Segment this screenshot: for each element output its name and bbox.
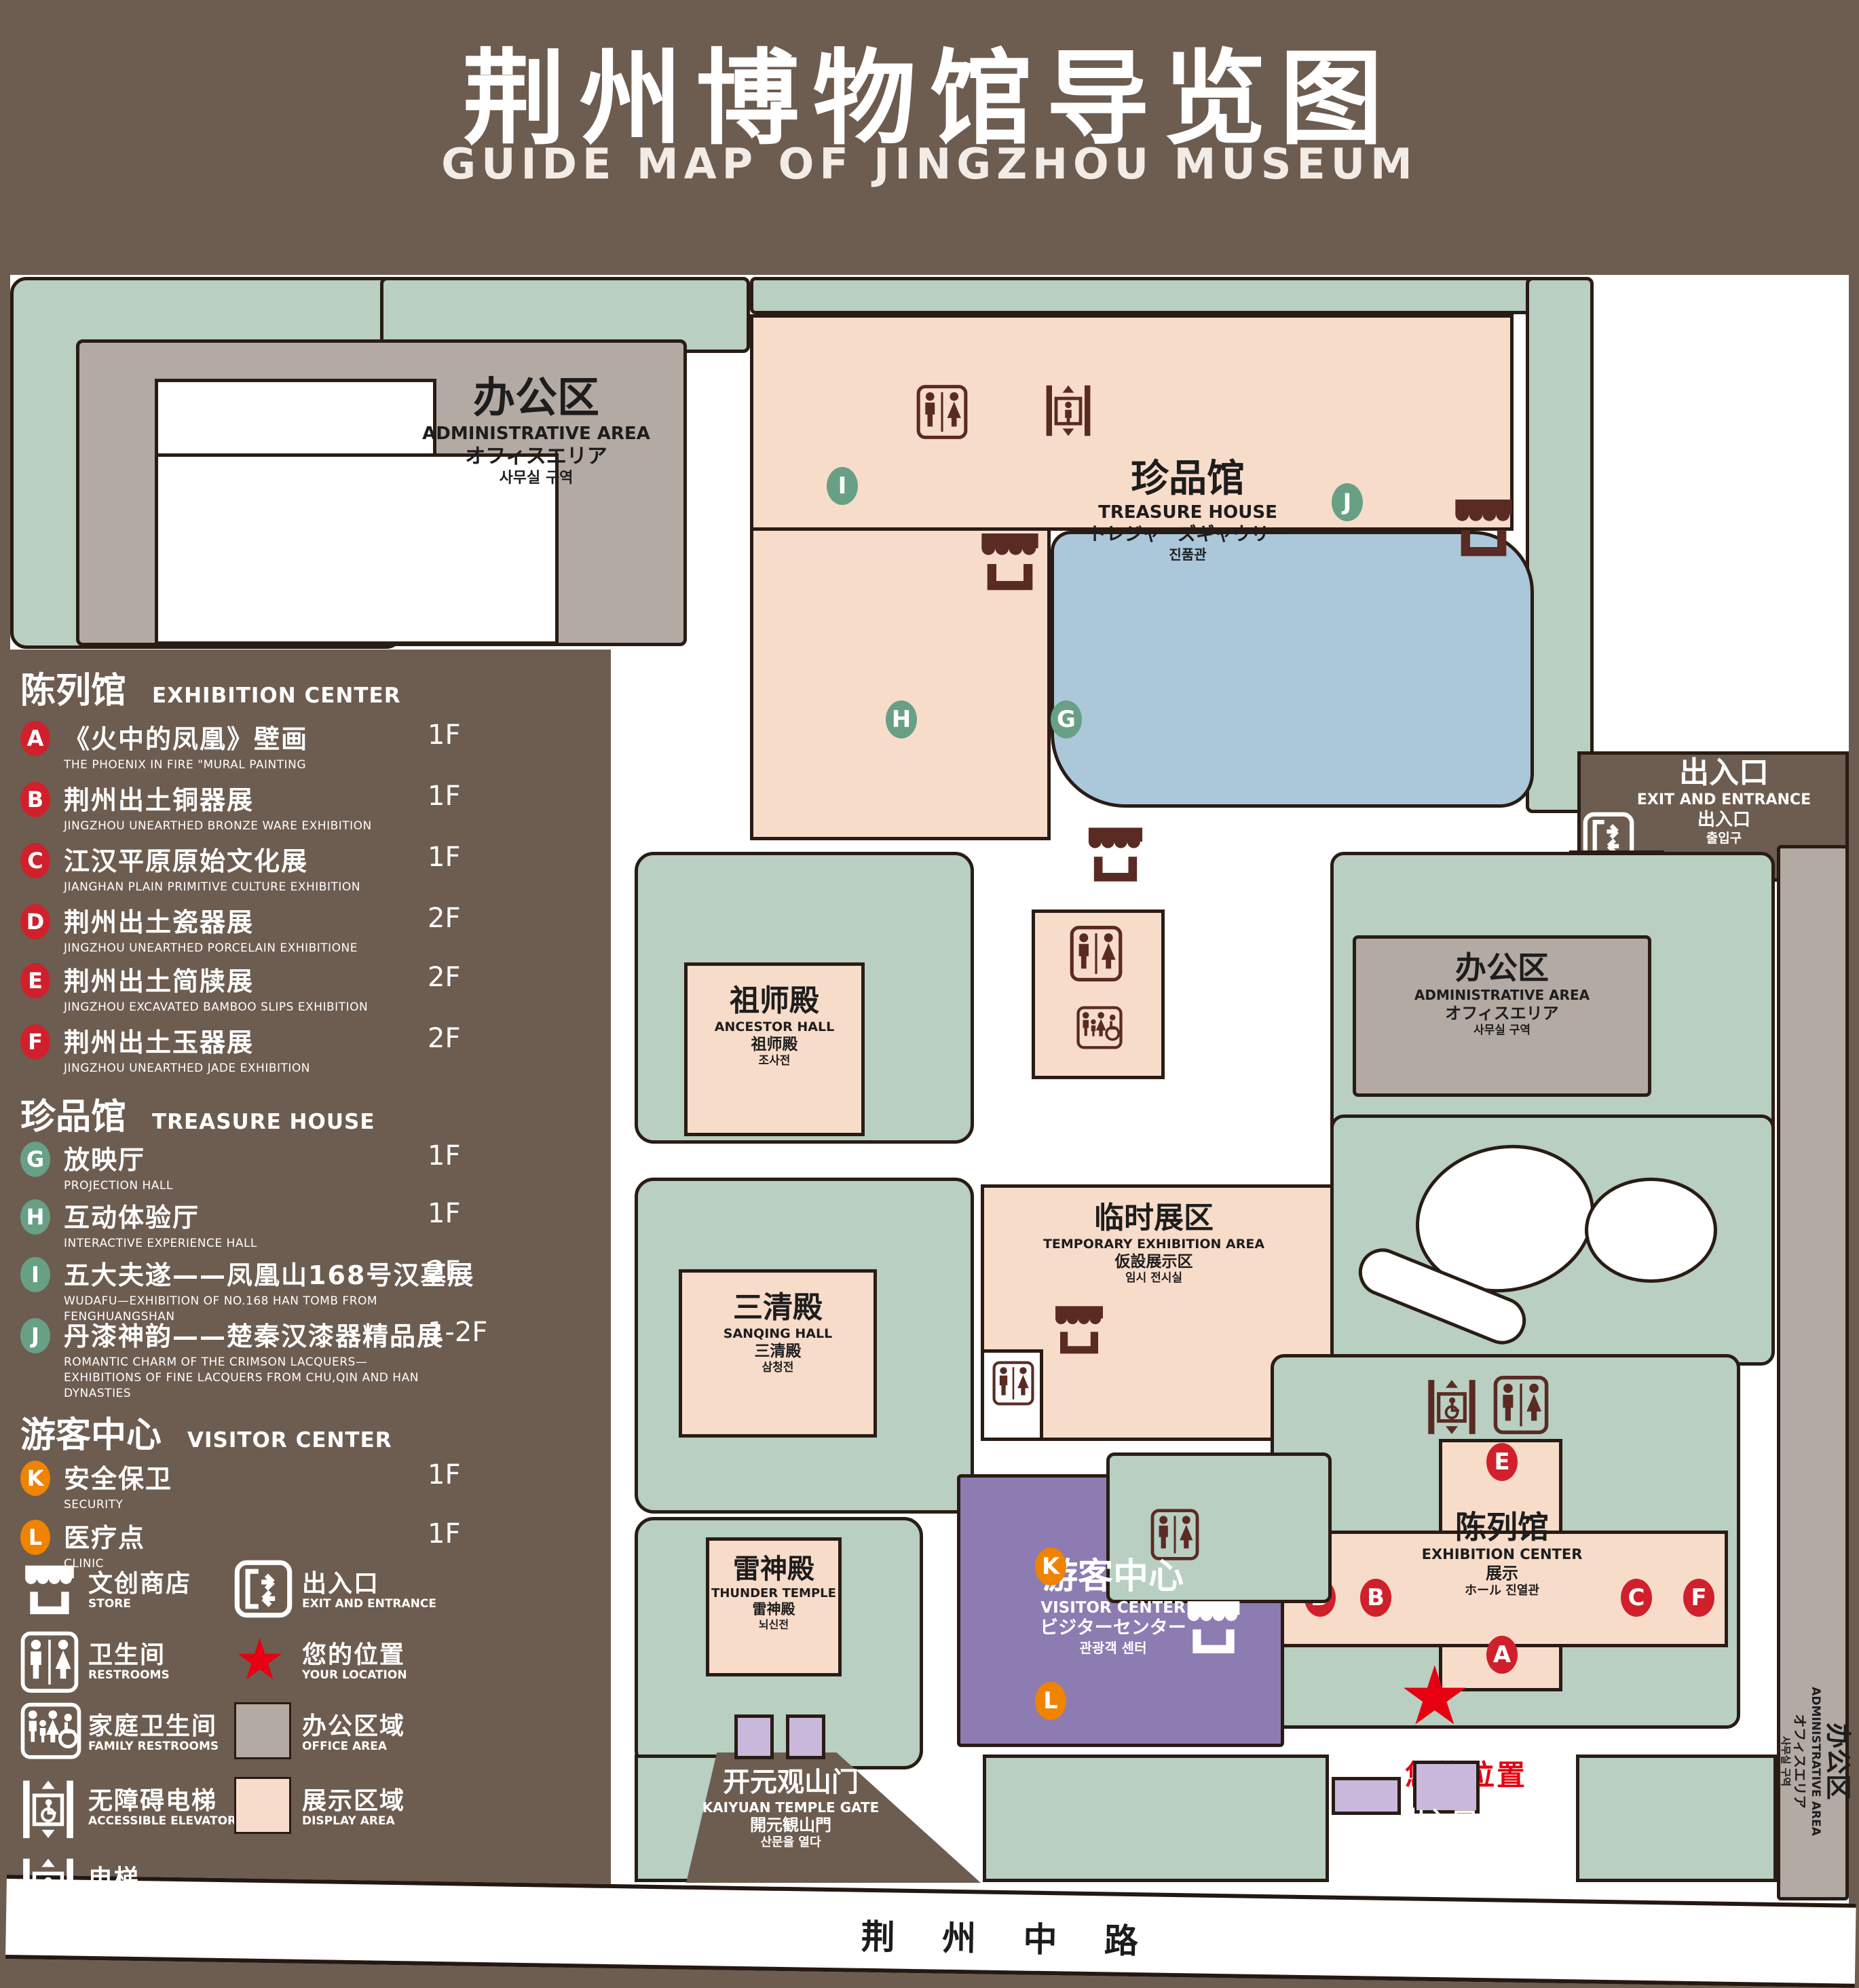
exhibition-kr: ホール 진열관 [1366, 1583, 1638, 1598]
item-floor: 2F [428, 962, 460, 993]
item-floor: 1F [428, 1459, 460, 1490]
treasure-en: TREASURE HOUSE [1045, 502, 1330, 524]
admin-strip-jp: オフィスエリア [1792, 1585, 1808, 1938]
icon-label-cn: 文创商店 [88, 1564, 191, 1599]
item-floor: 1-2F [428, 1317, 487, 1348]
item-cn: 放映厅 [64, 1139, 563, 1176]
gate-pillar [786, 1714, 825, 1759]
admin-e-en: ADMINISTRATIVE AREA [1332, 987, 1672, 1003]
icon-label-cn: 办公区域 [302, 1706, 405, 1742]
thunder-jp: 雷神殿 [689, 1601, 859, 1619]
item-cn: 荆州出土铜器展 [64, 779, 563, 817]
page-subtitle: GUIDE MAP OF JINGZHOU MUSEUM [0, 139, 1859, 189]
icon-label-cn: 您的位置 [302, 1635, 405, 1670]
restroom-icon [916, 384, 968, 440]
gate-cn: 开元观山门 [686, 1766, 896, 1799]
badge-j: J [20, 1318, 50, 1353]
icon-label-en: DISPLAY AREA [302, 1814, 395, 1828]
treasure-kr: 진품관 [1045, 546, 1330, 563]
exhibition-jp: 展示 [1366, 1564, 1638, 1583]
ancestor-kr: 조사전 [690, 1054, 859, 1068]
map-badge-a: A [1486, 1636, 1518, 1674]
icon-label-cn: 展示区域 [302, 1781, 405, 1816]
exit-s-kr: 출입구 [1344, 1871, 1534, 1884]
admin-e-kr: 사무실 구역 [1332, 1024, 1672, 1038]
admin-strip-cn: 办公区 [1822, 1585, 1854, 1938]
map-badge-e: E [1486, 1443, 1518, 1481]
item-floor: 1F [428, 1140, 460, 1171]
elevator-icon [1044, 380, 1093, 441]
ancestor-en: ANCESTOR HALL [690, 1019, 859, 1035]
badge-d: D [20, 904, 50, 939]
garden-path-loop [1585, 1178, 1717, 1283]
label-thunder-temple: 雷神殿 THUNDER TEMPLE 雷神殿 뇌신전 [689, 1553, 859, 1632]
exit-s-en: EXIT AND ENTRANCE [1344, 1837, 1534, 1852]
your-location-star-icon: ★ [1398, 1656, 1471, 1738]
label-exit-ne: 出入口 EXIT AND ENTRANCE 出入口 출입구 [1622, 755, 1826, 846]
item-floor: 1F [428, 1198, 460, 1229]
icon-label-en: STORE [88, 1597, 131, 1611]
exit-ne-cn: 出入口 [1622, 755, 1826, 791]
legend-item-g: G 放映厅 PROJECTION HALL 1F [20, 1139, 563, 1194]
visitor-cn: 游客中心 [971, 1556, 1256, 1598]
store-icon [1182, 1595, 1245, 1657]
temporary-en: TEMPORARY EXHIBITION AREA [1004, 1237, 1303, 1252]
icon-label-en: ACCESSIBLE ELEVATOR [88, 1814, 236, 1828]
legend-item-h: H 互动体验厅 INTERACTIVE EXPERIENCE HALL 1F [20, 1197, 563, 1252]
elevator-icon [20, 1855, 76, 1919]
section-title-cn: 游客中心 [20, 1415, 162, 1456]
exit-icon [234, 1560, 293, 1618]
gate-pillar [734, 1714, 774, 1759]
icon-label-en: RESTROOMS [88, 1668, 170, 1682]
label-admin-strip: 办公区 ADMINISTRATIVE AREA オフィスエリア 사무실 구역 [1772, 1585, 1854, 1938]
legend-item-e: E 荆州出土简牍展 JINGZHOU EXCAVATED BAMBOO SLIP… [20, 960, 563, 1015]
icon-label-en: FAMILY RESTROOMS [88, 1740, 219, 1753]
gate-en: KAIYUAN TEMPLE GATE [686, 1799, 896, 1816]
icon-label-cn: 电梯 [88, 1859, 140, 1894]
restroom-icon [992, 1359, 1034, 1408]
lawn-south-3 [1576, 1755, 1777, 1882]
label-ancestor-hall: 祖师殿 ANCESTOR HALL 祖师殿 조사전 [690, 983, 859, 1068]
office-area-swatch [234, 1702, 291, 1759]
item-en: JIANGHAN PLAIN PRIMITIVE CULTURE EXHIBIT… [64, 880, 444, 895]
item-cn: 荆州出土简牍展 [64, 960, 563, 998]
label-admin-nw: 办公区 ADMINISTRATIVE AREA オフィスエリア 사무실 구역 [367, 372, 706, 488]
legend-item-k: K 安全保卫 SECURITY 1F [20, 1458, 563, 1513]
icon-label-en: OFFICE AREA [302, 1740, 387, 1753]
item-cn: 荆州出土瓷器展 [64, 901, 563, 939]
map-badge-g: G [1051, 700, 1082, 738]
thunder-kr: 뇌신전 [689, 1618, 859, 1632]
legend-item-j: J 丹漆神韵——楚秦汉漆器精品展 ROMANTIC CHARM OF THE C… [20, 1315, 563, 1402]
item-cn: 安全保卫 [64, 1458, 563, 1495]
temporary-jp: 仮設展示区 [1004, 1252, 1303, 1271]
map-badge-f: F [1683, 1579, 1714, 1617]
store-icon [976, 527, 1044, 595]
item-floor: 2F [428, 1023, 460, 1054]
ancestor-cn: 祖师殿 [690, 983, 859, 1019]
badge-a: A [20, 721, 50, 756]
exit-s-jp: 出入口 [1344, 1853, 1534, 1871]
sanqing-kr: 삼청전 [693, 1361, 863, 1375]
family-restroom-icon [1075, 1006, 1124, 1049]
section-title-en: TREASURE HOUSE [152, 1110, 375, 1134]
thunder-cn: 雷神殿 [689, 1553, 859, 1586]
exhibition-cn: 陈列馆 [1366, 1508, 1638, 1546]
lawn-south-2 [983, 1755, 1329, 1882]
map-badge-h: H [886, 700, 917, 738]
icon-label-cn: 家庭卫生间 [88, 1706, 217, 1742]
store-icon [20, 1560, 79, 1618]
accessible-elevator-icon [1424, 1376, 1480, 1438]
admin-strip-kr: 사무실 구역 [1779, 1585, 1791, 1938]
label-kaiyuan-gate: 开元观山门 KAIYUAN TEMPLE GATE 開元観山門 산문을 열다 [686, 1766, 896, 1850]
sanqing-cn: 三清殿 [693, 1290, 863, 1326]
admin-e-jp: オフィスエリア [1332, 1004, 1672, 1024]
icon-label-en: EXIT AND ENTRANCE [302, 1597, 436, 1611]
legend-item-f: F 荆州出土玉器展 JINGZHOU UNEARTHED JADE EXHIBI… [20, 1021, 563, 1076]
exit-ne-kr: 출입구 [1622, 831, 1826, 846]
item-floor: 1F [428, 842, 460, 873]
item-en: THE PHOENIX IN FIRE "MURAL PAINTING [64, 757, 444, 773]
lawn-treasure-top [750, 277, 1592, 314]
admin-nw-kr: 사무실 구역 [367, 470, 706, 488]
admin-nw-cn: 办公区 [367, 372, 706, 424]
store-icon [1450, 493, 1518, 561]
pond [1051, 531, 1534, 808]
icon-label-cn: 无障碍电梯 [88, 1781, 217, 1816]
store-icon [1083, 821, 1148, 886]
item-en: JINGZHOU UNEARTHED JADE EXHIBITION [64, 1061, 444, 1076]
exit-ne-jp: 出入口 [1622, 810, 1826, 831]
temporary-cn: 临时展区 [1004, 1200, 1303, 1237]
restroom-icon [20, 1631, 79, 1693]
item-floor: 1F [428, 719, 460, 751]
exit-s-cn: 出入口 [1344, 1805, 1534, 1837]
map-badge-k: K [1035, 1548, 1066, 1586]
map-badge-l: L [1035, 1682, 1066, 1720]
gate-kr: 산문을 열다 [686, 1835, 896, 1850]
admin-e-cn: 办公区 [1332, 949, 1672, 987]
item-cn: 互动体验厅 [64, 1197, 563, 1234]
admin-nw-en: ADMINISTRATIVE AREA [367, 424, 706, 445]
item-en: PROJECTION HALL [64, 1178, 444, 1194]
legend-item-a: A 《火中的凤凰》壁画 THE PHOENIX IN FIRE "MURAL P… [20, 718, 563, 773]
legend-item-i: I 五大夫遂——凤凰山168号汉墓展 WUDAFU—EXHIBITION OF … [20, 1254, 563, 1325]
item-en: INTERACTIVE EXPERIENCE HALL [64, 1236, 444, 1252]
exhibition-en: EXHIBITION CENTER [1366, 1546, 1638, 1564]
label-admin-east: 办公区 ADMINISTRATIVE AREA オフィスエリア 사무실 구역 [1332, 949, 1672, 1038]
badge-h: H [20, 1199, 50, 1235]
badge-b: B [20, 782, 50, 817]
item-floor: 2F [428, 1256, 460, 1287]
item-floor: 1F [428, 1518, 460, 1550]
label-exit-south: 出入口 EXIT AND ENTRANCE 出入口 출입구 [1344, 1805, 1534, 1884]
section-title-cn: 陈列馆 [20, 671, 126, 711]
sanqing-en: SANQING HALL [693, 1326, 863, 1342]
icon-label-en: Elevator [88, 1892, 143, 1906]
item-en: JINGZHOU UNEARTHED BRONZE WARE EXHIBITIO… [64, 819, 444, 834]
badge-f: F [20, 1024, 50, 1059]
restroom-icon [1150, 1507, 1199, 1562]
admin-nw-jp: オフィスエリア [367, 445, 706, 470]
badge-k: K [20, 1461, 50, 1496]
display-area-swatch [234, 1777, 291, 1834]
gate-jp: 開元観山門 [686, 1816, 896, 1835]
accessible-elevator-icon [20, 1777, 76, 1841]
badge-e: E [20, 963, 50, 998]
legend-item-c: C 江汉平原原始文化展 JIANGHAN PLAIN PRIMITIVE CUL… [20, 840, 563, 895]
temporary-kr: 임시 전시실 [1004, 1271, 1303, 1286]
section-title-en: VISITOR CENTER [187, 1428, 392, 1452]
item-en: SECURITY [64, 1497, 444, 1513]
legend-section-treasure: 珍品馆TREASURE HOUSE [20, 1088, 375, 1139]
icon-label-en: YOUR LOCATION [302, 1668, 407, 1682]
restroom-icon [1070, 924, 1123, 983]
item-cn: 五大夫遂——凤凰山168号汉墓展 [64, 1254, 563, 1292]
icon-label-cn: 卫生间 [88, 1635, 166, 1670]
item-en: ROMANTIC CHARM OF THE CRIMSON LACQUERS—E… [64, 1355, 444, 1402]
admin-strip-en: ADMINISTRATIVE AREA [1808, 1585, 1822, 1938]
legend-item-d: D 荆州出土瓷器展 JINGZHOU UNEARTHED PORCELAIN E… [20, 901, 563, 956]
label-temporary-area: 临时展区 TEMPORARY EXHIBITION AREA 仮設展示区 임시 … [1004, 1200, 1303, 1286]
icon-label-cn: 出入口 [302, 1564, 379, 1599]
badge-g: G [20, 1142, 50, 1177]
item-en: JINGZHOU EXCAVATED BAMBOO SLIPS EXHIBITI… [64, 1000, 444, 1015]
label-sanqing-hall: 三清殿 SANQING HALL 三清殿 삼청전 [693, 1290, 863, 1375]
exit-ne-en: EXIT AND ENTRANCE [1622, 791, 1826, 810]
badge-c: C [20, 843, 50, 878]
section-title-cn: 珍品馆 [20, 1097, 126, 1138]
item-en: JINGZHOU UNEARTHED PORCELAIN EXHIBITIONE [64, 941, 444, 956]
legend-section-exhibition: 陈列馆EXHIBITION CENTER [20, 662, 401, 713]
thunder-en: THUNDER TEMPLE [689, 1586, 859, 1601]
item-cn: 荆州出土玉器展 [64, 1021, 563, 1059]
legend-section-visitor: 游客中心VISITOR CENTER [20, 1406, 392, 1457]
map-badge-j: J [1332, 483, 1363, 521]
map-badge-i: I [827, 467, 858, 505]
treasure-seam-patch [754, 318, 1047, 527]
lawn-east-strip [1526, 277, 1594, 813]
legend-item-b: B 荆州出土铜器展 JINGZHOU UNEARTHED BRONZE WARE… [20, 779, 563, 834]
map-badge-b: B [1360, 1579, 1391, 1617]
item-cn: 丹漆神韵——楚秦汉漆器精品展 [64, 1315, 563, 1353]
item-cn: 医疗点 [64, 1517, 563, 1554]
item-floor: 2F [428, 903, 460, 934]
item-cn: 江汉平原原始文化展 [64, 840, 563, 878]
treasure-jp: トレジャーズギャウリー [1045, 524, 1330, 546]
store-icon [1051, 1300, 1108, 1357]
map-badge-c: C [1621, 1579, 1652, 1617]
ancestor-jp: 祖师殿 [690, 1035, 859, 1054]
location-star-icon: ★ [234, 1631, 285, 1688]
label-treasure-house: 珍品馆 TREASURE HOUSE トレジャーズギャウリー 진품관 [1045, 456, 1330, 563]
treasure-cn: 珍品馆 [1045, 456, 1330, 502]
item-cn: 《火中的凤凰》壁画 [64, 718, 563, 755]
road-name: 荆 州 中 路 [861, 1910, 1156, 1964]
badge-l: L [20, 1520, 50, 1555]
sanqing-jp: 三清殿 [693, 1342, 863, 1361]
restroom-icon [1493, 1374, 1549, 1436]
family-restroom-icon [20, 1702, 81, 1759]
item-floor: 1F [428, 781, 460, 812]
section-title-en: EXHIBITION CENTER [152, 683, 401, 708]
badge-i: I [20, 1257, 50, 1292]
label-exhibition-center: 陈列馆 EXHIBITION CENTER 展示 ホール 진열관 [1366, 1508, 1638, 1598]
